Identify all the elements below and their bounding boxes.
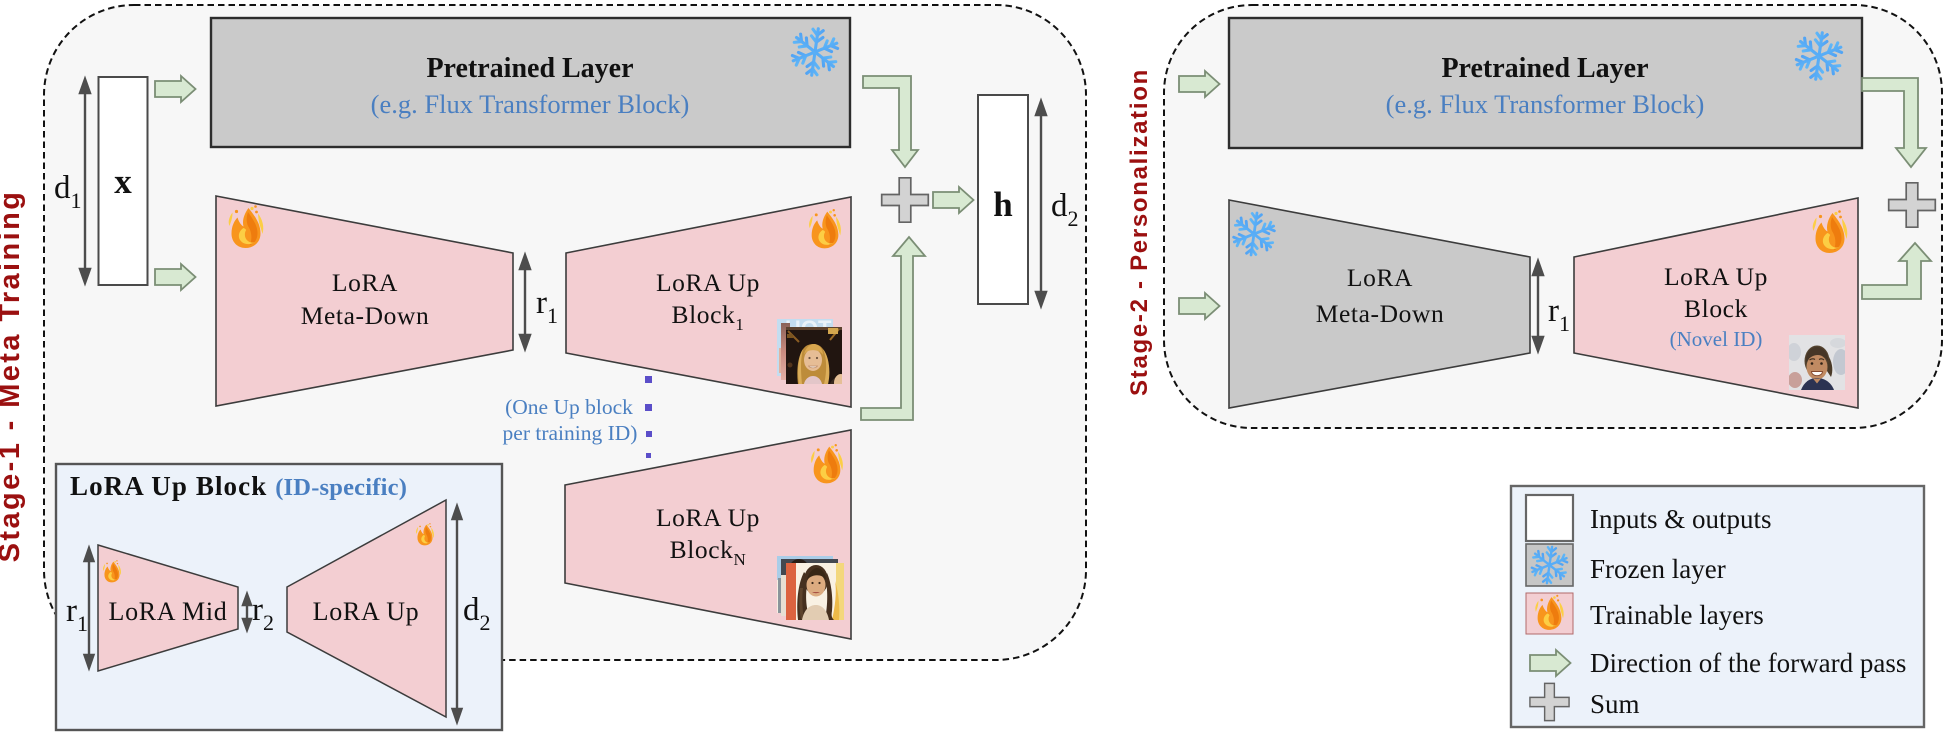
svg-text:(e.g. Flux Transformer Block): (e.g. Flux Transformer Block) [1386, 89, 1705, 119]
svg-text:LoRA Up: LoRA Up [656, 268, 760, 297]
svg-text:LoRA Up: LoRA Up [313, 597, 420, 626]
svg-text:Pretrained Layer: Pretrained Layer [426, 53, 633, 84]
svg-text:(Novel ID): (Novel ID) [1670, 327, 1763, 351]
svg-text:(e.g. Flux Transformer Block): (e.g. Flux Transformer Block) [371, 89, 690, 119]
svg-text:LoRA: LoRA [1347, 263, 1413, 292]
svg-text:Stage-1 - Meta Training: Stage-1 - Meta Training [0, 190, 26, 563]
svg-text:LoRA Up Block (ID-specific): LoRA Up Block (ID-specific) [70, 471, 407, 501]
svg-text:Block: Block [1684, 294, 1748, 323]
svg-text:Meta-Down: Meta-Down [1316, 299, 1445, 328]
svg-text:Block1: Block1 [671, 300, 744, 334]
svg-text:LoRA Up: LoRA Up [1664, 262, 1768, 291]
svg-text:Pretrained Layer: Pretrained Layer [1441, 53, 1648, 84]
svg-text:Stage-2 - Personalization: Stage-2 - Personalization [1126, 68, 1153, 396]
svg-text:x: x [114, 162, 132, 201]
svg-text:h: h [993, 185, 1012, 224]
svg-text:Frozen layer: Frozen layer [1590, 554, 1726, 584]
svg-text:Direction of the forward pass: Direction of the forward pass [1590, 648, 1906, 678]
svg-text:Inputs & outputs: Inputs & outputs [1590, 504, 1772, 534]
svg-text:LoRA Mid: LoRA Mid [108, 597, 227, 626]
svg-text:Sum: Sum [1590, 689, 1640, 719]
svg-text:(One Up block: (One Up block [505, 395, 633, 419]
svg-text:LoRA: LoRA [332, 268, 398, 297]
svg-text:LoRA Up: LoRA Up [656, 503, 760, 532]
svg-text:Trainable layers: Trainable layers [1590, 600, 1764, 630]
svg-text:per training ID): per training ID) [503, 421, 638, 445]
svg-text:Meta-Down: Meta-Down [301, 301, 430, 330]
